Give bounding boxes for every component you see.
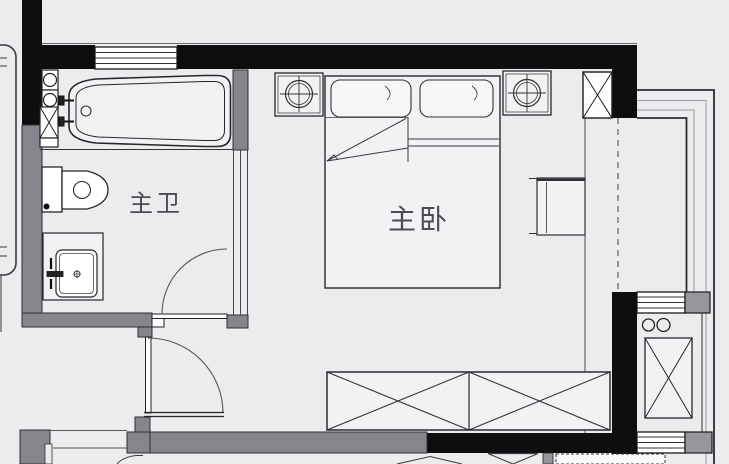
toilet <box>42 167 108 212</box>
wall-partition-fill <box>233 70 248 150</box>
desk <box>529 178 585 235</box>
bath-door-hinge-block <box>227 315 248 328</box>
room-label-master-bathroom: 主卫 <box>129 184 183 219</box>
nightstand-left <box>275 73 323 116</box>
wall-bottom-black <box>427 433 618 453</box>
window-end-block-top <box>685 292 710 313</box>
bathtub <box>40 76 233 150</box>
floor-plan-drawing <box>0 0 729 464</box>
room-label-master-bedroom: 主卧 <box>388 198 450 238</box>
bathroom-swing-door <box>152 249 227 327</box>
lower-dashed-strip <box>556 454 665 464</box>
duct-shaft-box <box>40 107 58 147</box>
partition-wall-lines <box>234 150 248 315</box>
wall-left-top <box>22 0 42 125</box>
toilet-valve-dot <box>44 204 50 210</box>
pillow-left <box>331 80 411 117</box>
wall-top-right-corner <box>612 69 637 118</box>
hall-opening-lines <box>50 431 127 449</box>
control-knobs <box>42 70 58 110</box>
lower-gray-block <box>543 453 553 464</box>
door-leaf <box>152 314 227 319</box>
bedroom-swing-door <box>144 337 224 417</box>
bed-door-bottom-post-a <box>135 417 150 433</box>
bed-door-top-post <box>138 327 152 337</box>
balcony-knobs <box>643 319 671 332</box>
pillow-right <box>420 80 493 117</box>
window-end-block-bottom <box>685 432 712 453</box>
window-balcony-top <box>637 292 685 313</box>
washer-unit <box>645 338 692 418</box>
window-top <box>95 47 177 69</box>
floor-plan-canvas: 主卫 主卧 <box>0 0 729 464</box>
hall-corner-notch <box>45 444 52 464</box>
double-bed <box>325 76 500 288</box>
wall-bath-bottom <box>22 313 152 327</box>
wall-top-b <box>177 45 637 69</box>
vanity-sink <box>43 233 103 300</box>
lower-floor-fragments <box>117 453 665 464</box>
toilet-bowl <box>62 171 108 209</box>
column-shaft-box <box>583 72 612 118</box>
wall-top-a <box>42 45 95 69</box>
wall-bottom-gray <box>150 432 427 453</box>
door-leaf <box>146 337 152 413</box>
nightstand-right <box>503 71 551 115</box>
lower-door-arc <box>117 456 143 464</box>
wardrobe <box>327 372 610 430</box>
lower-wardrobe-x <box>397 457 462 464</box>
window-balcony-bottom <box>637 432 685 453</box>
door-swing-arc <box>148 338 223 413</box>
neighbor-fixture-outline <box>0 45 16 332</box>
door-swing-arc <box>162 249 227 314</box>
wall-left-lower <box>22 125 42 327</box>
